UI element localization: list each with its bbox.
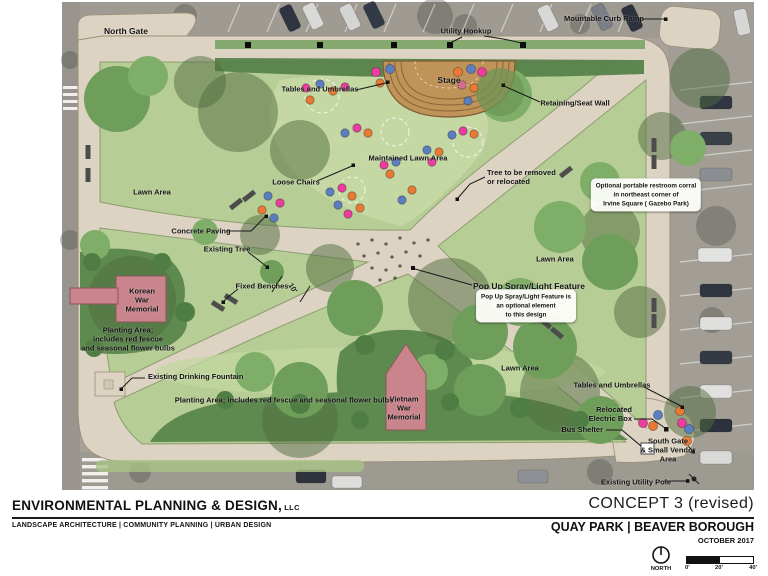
scale-bar-segments [686, 556, 754, 564]
north-arrow-icon [650, 545, 672, 565]
spray-feature-point [411, 266, 415, 270]
scale-tick-40: 40' [749, 565, 757, 571]
firm-name: ENVIRONMENTAL PLANNING & DESIGN, LLC [12, 498, 300, 513]
north-label: NORTH [651, 566, 672, 572]
firm-tagline: LANDSCAPE ARCHITECTURE | COMMUNITY PLANN… [12, 522, 271, 529]
firm-suffix: LLC [282, 503, 300, 512]
plan-date: OCTOBER 2017 [698, 536, 754, 545]
scale-tick-20: 20' [715, 565, 723, 571]
concept-plan-sheet: North Gate Utility Hookup Mountable Curb… [0, 0, 768, 576]
north-arrow: NORTH [650, 545, 672, 572]
north-and-scale: NORTH 0' 20' 40' [650, 545, 754, 572]
title-block: ENVIRONMENTAL PLANNING & DESIGN, LLC LAN… [0, 490, 768, 576]
site-plan-drawing [0, 0, 768, 491]
project-title: QUAY PARK | BEAVER BOROUGH [551, 520, 754, 534]
title-divider-line [12, 517, 754, 519]
site-plan-map: North Gate Utility Hookup Mountable Curb… [0, 0, 768, 491]
bus-shelter-structure [641, 443, 654, 454]
scale-bar: 0' 20' 40' [686, 554, 754, 572]
concept-title: CONCEPT 3 (revised) [588, 495, 754, 513]
scale-tick-0: 0' [685, 565, 690, 571]
